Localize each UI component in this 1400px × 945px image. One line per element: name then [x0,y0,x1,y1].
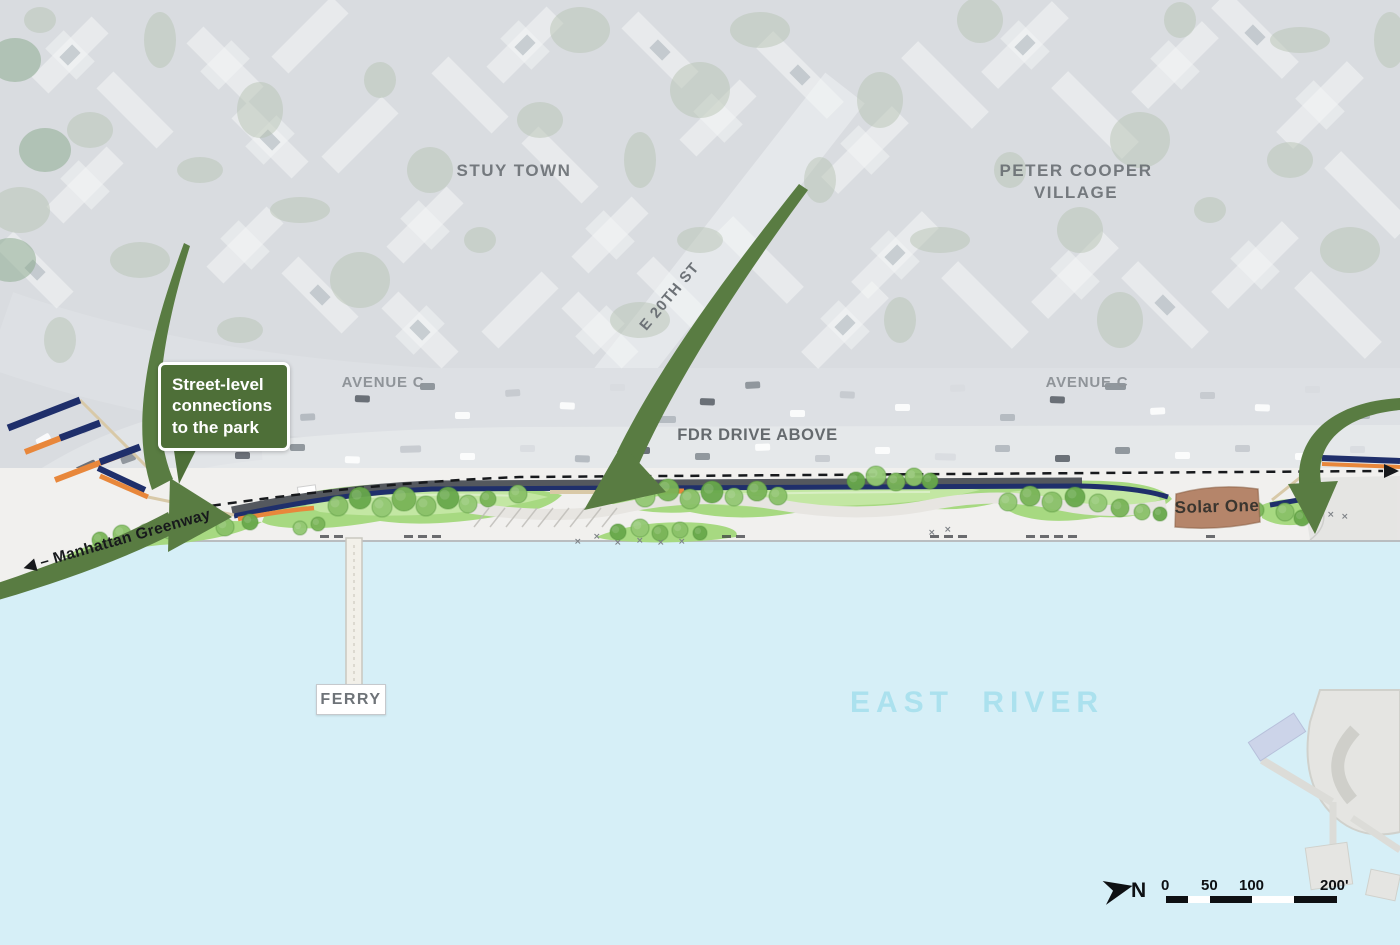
label-fdr-drive: FDR DRIVE ABOVE [655,426,860,445]
scale-bar [1166,896,1337,903]
site-plan-map: ××××××××××× STUY TOWN PETER COOP [0,0,1400,945]
label-avenue-c-east: AVENUE C [1032,374,1142,391]
label-avenue-c-west: AVENUE C [328,374,438,391]
scale-tick-100: 100 [1239,877,1264,894]
east-river-water [0,541,1400,945]
label-east-river: EAST RIVER [850,686,1104,720]
scale-tick-50: 50 [1201,877,1218,894]
svg-text:×: × [657,538,665,548]
svg-text:×: × [928,528,936,538]
ferry-label-box: FERRY [316,684,386,715]
svg-text:×: × [1327,510,1335,520]
svg-text:×: × [944,525,952,535]
scale-tick-200: 200' [1320,877,1349,894]
ferry-pier [346,538,362,688]
label-peter-cooper-village: PETER COOPER VILLAGE [976,160,1176,204]
svg-text:×: × [678,537,686,547]
map-graphics: ××××××××××× [0,0,1400,945]
svg-text:×: × [574,537,582,547]
svg-text:×: × [1341,512,1349,522]
north-label: N [1131,879,1146,903]
svg-text:×: × [593,532,601,542]
scale-tick-0: 0 [1161,877,1169,894]
svg-text:×: × [636,536,644,546]
label-solar-one: Solar One [1172,496,1262,518]
label-stuy-town: STUY TOWN [434,161,594,181]
svg-text:×: × [614,538,622,548]
callout-street-level-connections: Street-level connections to the park [158,362,290,451]
